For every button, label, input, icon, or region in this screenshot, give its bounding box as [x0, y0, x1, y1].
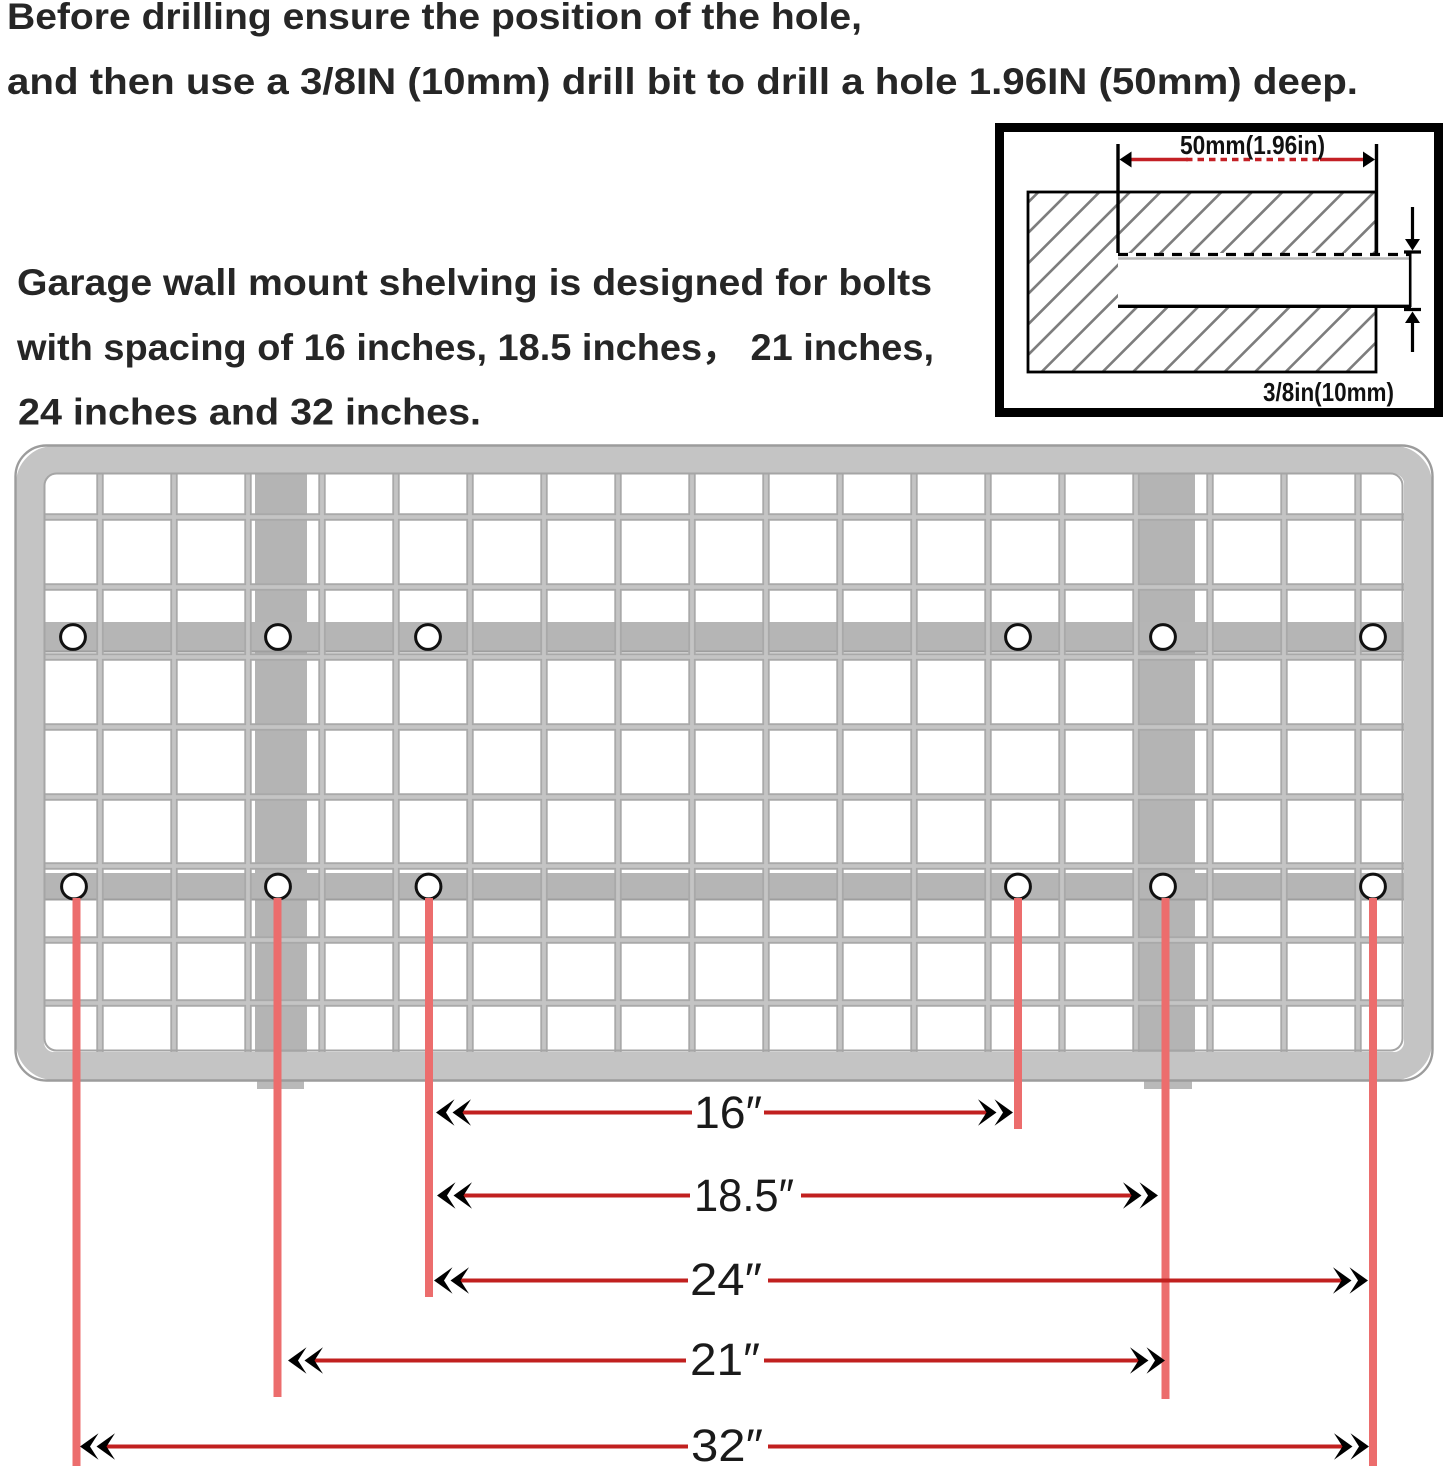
svg-text:32″: 32″ — [691, 1420, 763, 1471]
svg-text:16″: 16″ — [694, 1087, 762, 1138]
svg-text:and then use a 3/8IN (10mm) dr: and then use a 3/8IN (10mm) drill bit to… — [7, 61, 1358, 102]
svg-text:24 inches and 32 inches.: 24 inches and 32 inches. — [18, 392, 481, 433]
svg-text:18.5″: 18.5″ — [694, 1170, 794, 1221]
svg-text:24″: 24″ — [690, 1254, 762, 1305]
svg-text:Before drilling ensure the pos: Before drilling ensure the position of t… — [7, 0, 862, 37]
svg-text:with spacing of 16 inches, 18.: with spacing of 16 inches, 18.5 inches， … — [16, 327, 934, 368]
svg-text:3/8in(10mm): 3/8in(10mm) — [1263, 377, 1394, 407]
svg-text:Garage wall mount shelving is: Garage wall mount shelving is designed f… — [17, 262, 932, 303]
svg-text:21″: 21″ — [690, 1334, 760, 1385]
svg-text:50mm(1.96in): 50mm(1.96in) — [1180, 130, 1325, 160]
